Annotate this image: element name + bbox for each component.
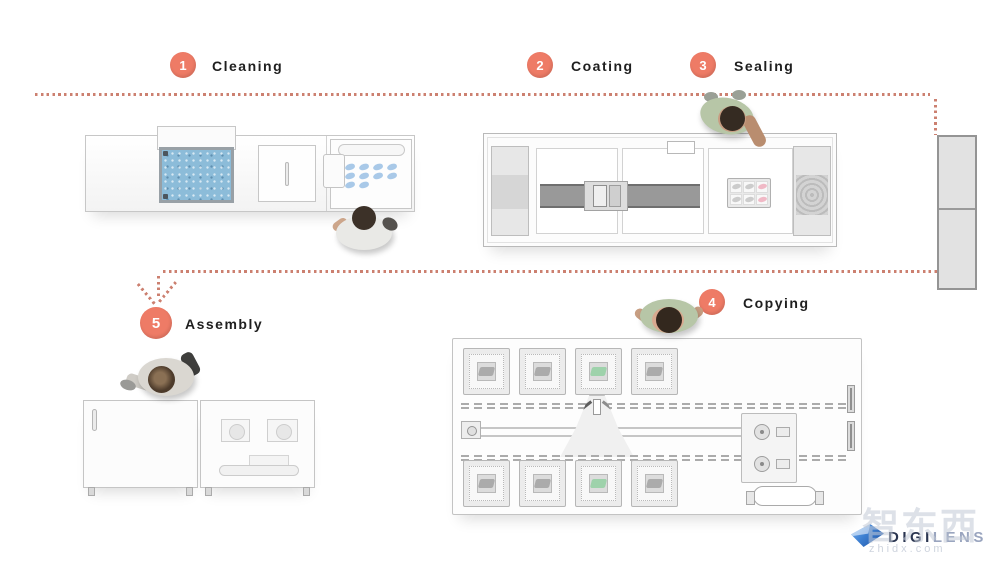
watermark-text: 智东西 <box>862 496 979 550</box>
knob-icon <box>754 456 770 472</box>
lens-blank-icon <box>344 163 355 172</box>
worker-head <box>148 366 175 393</box>
copy-station <box>519 348 566 395</box>
lens-blank-icon <box>372 163 383 172</box>
step-3-badge: 3 <box>690 52 716 78</box>
ultrasonic-cleaning-tank <box>159 147 234 203</box>
lens-icon <box>731 183 741 190</box>
chamber-top-module <box>667 141 695 154</box>
fan-icon <box>796 175 828 215</box>
worker-head <box>720 106 745 131</box>
step-1-badge: 1 <box>170 52 196 78</box>
copy-station <box>631 348 678 395</box>
drying-unit <box>330 139 412 209</box>
lens-icon <box>534 367 551 376</box>
bench-foot <box>303 487 310 496</box>
panel-handle <box>285 162 289 186</box>
worker-figure-copying <box>638 293 702 339</box>
tray-cell <box>756 181 768 193</box>
flow-line-middle <box>163 270 937 273</box>
bench-handle <box>92 409 97 431</box>
tray-cell <box>743 181 755 193</box>
copy-station <box>519 460 566 507</box>
bench-foot <box>186 487 193 496</box>
worker-head <box>656 307 682 333</box>
vacuum-tank <box>753 486 817 506</box>
process-flow-diagram: 1 Cleaning 2 Coating 3 Sealing 4 Copying… <box>0 0 1000 578</box>
lens-tray <box>727 178 771 208</box>
worker-figure-sealing <box>698 92 782 150</box>
dryer-side-module <box>323 154 345 188</box>
lens-icon <box>590 479 607 488</box>
lens-icon <box>757 183 767 190</box>
bench-foot <box>205 487 212 496</box>
step-1-label: Cleaning <box>212 58 283 74</box>
lens-blank-icon <box>358 181 369 190</box>
worker-figure-assembly <box>126 350 212 410</box>
cleaning-inspection-panel <box>258 145 316 202</box>
worker-head <box>352 206 376 230</box>
lens-blank-icon <box>386 163 397 172</box>
lens-blank-icon <box>358 163 369 172</box>
lens-icon <box>744 196 754 203</box>
copy-station <box>631 460 678 507</box>
tray-cell <box>730 194 742 206</box>
edge-fixture <box>847 421 855 451</box>
sealing-cabinet <box>937 135 977 290</box>
step-2-badge: 2 <box>527 52 553 78</box>
copy-station-active <box>575 348 622 395</box>
lens-icon <box>478 479 495 488</box>
copy-station-active <box>575 460 622 507</box>
tray-cell <box>743 194 755 206</box>
control-panel <box>741 413 797 483</box>
parts-tray-dish <box>219 465 299 476</box>
tray-cell <box>730 181 742 193</box>
lens-blank-icon <box>344 172 355 181</box>
copy-station <box>463 460 510 507</box>
flow-arrowhead-left <box>137 283 157 306</box>
lens-icon <box>590 367 607 376</box>
coater-left-module <box>491 146 529 236</box>
watermark-url: zhidx.com <box>869 543 946 555</box>
gantry-core <box>593 399 601 415</box>
worker-figure-cleaning <box>334 206 394 252</box>
lens-icon <box>744 183 754 190</box>
coating-machine <box>483 133 837 247</box>
flow-arrow-stem <box>157 276 160 298</box>
bench-foot <box>88 487 95 496</box>
panel-chip <box>776 427 790 437</box>
assembly-fixture <box>221 419 250 442</box>
lens-blank-icon <box>386 172 397 181</box>
assembly-bench-left <box>83 400 198 488</box>
step-4-label: Copying <box>743 295 810 311</box>
lens-icon <box>534 479 551 488</box>
lens-blank-icon <box>358 172 369 181</box>
dryer-roller <box>338 144 405 156</box>
copying-machine <box>452 338 862 515</box>
edge-fixture <box>847 385 855 413</box>
step-3-label: Sealing <box>734 58 794 74</box>
step-2-label: Coating <box>571 58 634 74</box>
coating-head-carriage <box>584 181 628 211</box>
assembly-bench-right <box>200 400 315 488</box>
coater-right-module <box>793 146 831 236</box>
module-hatch <box>492 175 528 209</box>
flow-line-right-drop <box>934 99 937 135</box>
lens-icon <box>731 196 741 203</box>
lens-icon <box>646 479 663 488</box>
panel-chip <box>776 459 790 469</box>
lens-icon <box>478 367 495 376</box>
knob-icon <box>754 424 770 440</box>
copy-station <box>463 348 510 395</box>
lens-blank-icon <box>372 172 383 181</box>
transfer-track-top <box>461 403 851 409</box>
assembly-fixture <box>267 419 298 442</box>
step-5-label: Assembly <box>185 316 263 332</box>
tray-cell <box>756 194 768 206</box>
wafer-rack <box>345 164 407 188</box>
flow-arrowhead-right <box>157 281 177 304</box>
lens-icon <box>646 367 663 376</box>
lens-icon <box>757 196 767 203</box>
step-5-badge: 5 <box>140 307 172 339</box>
flow-line-top <box>35 93 930 96</box>
rail-endblock <box>461 421 481 439</box>
lens-blank-icon <box>344 181 355 190</box>
